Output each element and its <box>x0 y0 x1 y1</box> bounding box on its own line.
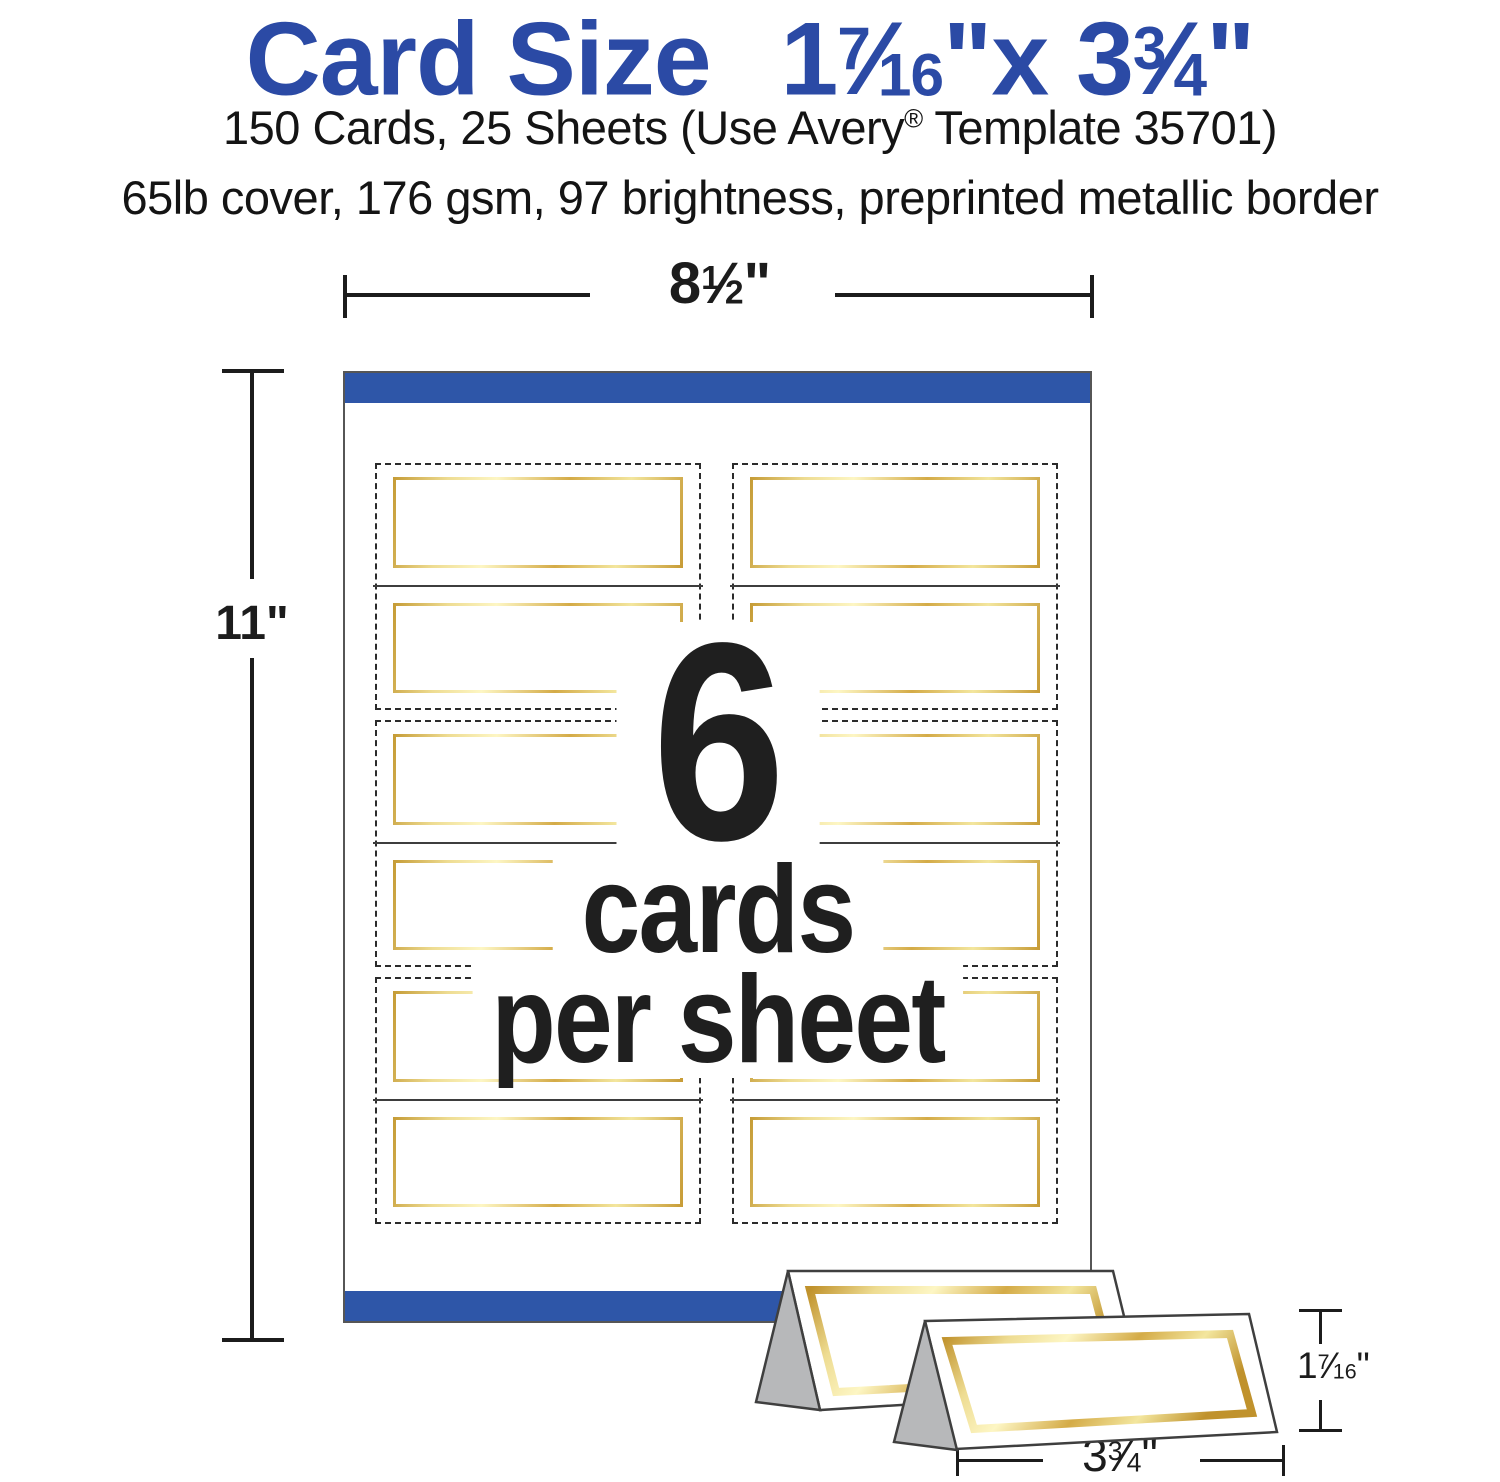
cards-word: cards <box>552 858 883 962</box>
dimension-line <box>250 373 254 579</box>
product-infographic: Card Size 17⁄16"x 33⁄4" 150 Cards, 25 Sh… <box>0 0 1500 1482</box>
fraction-numerator: 7 <box>837 14 870 82</box>
dimension-line <box>835 293 1093 297</box>
fraction-denominator: 2 <box>725 275 744 312</box>
fraction-denominator: 16 <box>878 41 943 109</box>
dim-whole: 8 <box>669 251 701 316</box>
sheet-height-label: 11" <box>187 596 317 651</box>
subtitle-line1: 150 Cards, 25 Sheets (Use Avery® Templat… <box>0 100 1500 155</box>
dimension-line <box>250 658 254 1338</box>
inch-mark: " <box>1357 1345 1370 1386</box>
dimension-line <box>345 293 590 297</box>
fraction-denominator: 16 <box>1333 1359 1357 1383</box>
card-height-label: 17⁄16" <box>1297 1345 1370 1387</box>
subtitle-text: 150 Cards, 25 Sheets (Use Avery <box>223 101 904 154</box>
center-callout: 6 cards per sheet <box>343 371 1092 1323</box>
cards-count: 6 <box>616 622 819 862</box>
dimension-cap <box>222 1338 284 1342</box>
sheet-width-label: 81⁄2" <box>595 250 845 317</box>
tent-cards-illustration <box>700 1255 1300 1482</box>
per-sheet-word: per sheet <box>472 962 963 1078</box>
dimension-cap <box>1299 1429 1342 1432</box>
dimension-line <box>1319 1400 1322 1431</box>
subtitle-text: Template 35701) <box>923 101 1277 154</box>
subtitle-line2: 65lb cover, 176 gsm, 97 brightness, prep… <box>0 170 1500 225</box>
inch-mark: " <box>744 251 772 316</box>
dimension-line <box>1319 1311 1322 1344</box>
dim-whole: 1 <box>1297 1345 1318 1386</box>
registered-mark: ® <box>904 105 923 133</box>
fraction-denominator: 4 <box>1174 41 1207 109</box>
